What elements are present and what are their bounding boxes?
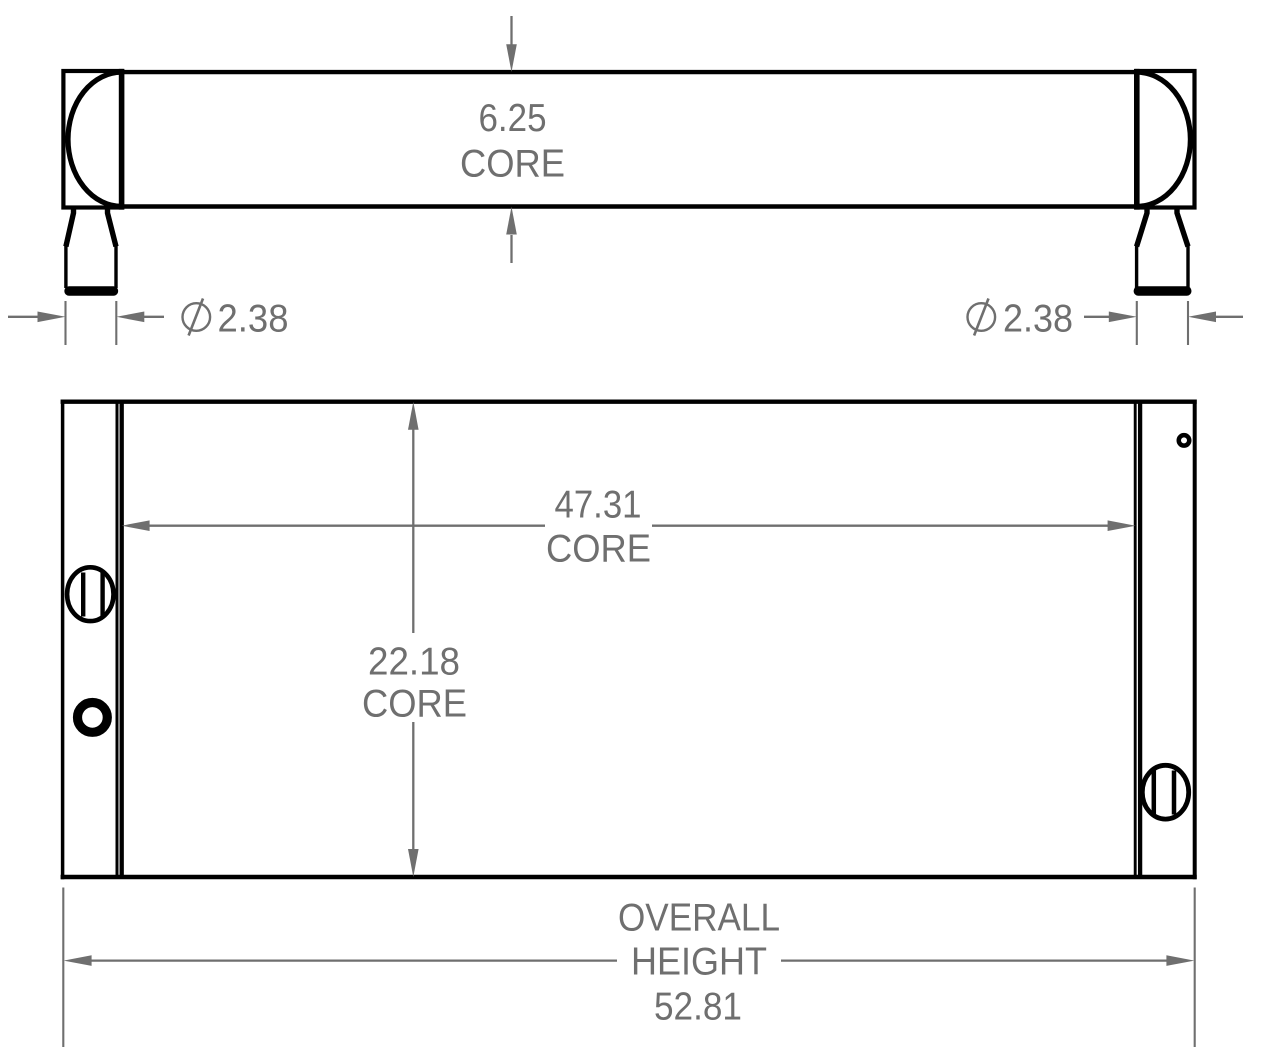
svg-text:52.81: 52.81 — [654, 985, 742, 1028]
svg-text:2.38: 2.38 — [1003, 298, 1073, 341]
svg-text:6.25: 6.25 — [479, 97, 547, 140]
svg-text:22.18: 22.18 — [368, 641, 460, 684]
svg-text:CORE: CORE — [546, 528, 651, 571]
svg-text:CORE: CORE — [460, 143, 565, 186]
svg-text:47.31: 47.31 — [555, 484, 642, 527]
svg-text:2.38: 2.38 — [218, 298, 289, 341]
svg-text:OVERALL: OVERALL — [618, 896, 780, 939]
svg-text:CORE: CORE — [362, 683, 467, 726]
svg-text:HEIGHT: HEIGHT — [631, 941, 767, 984]
